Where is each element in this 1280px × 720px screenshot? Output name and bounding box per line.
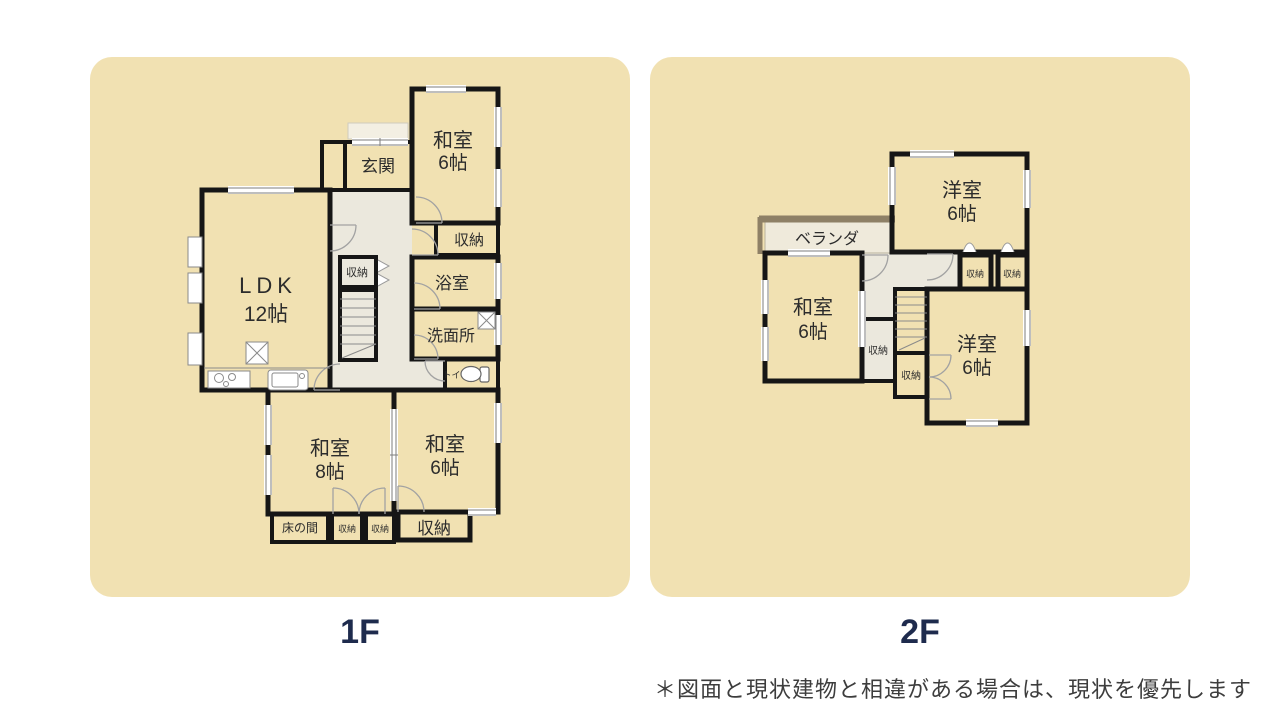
sink-icon <box>268 370 308 390</box>
window <box>468 508 496 516</box>
label-yoshitsu-s-size: 6帖 <box>962 357 992 379</box>
label-closet-n2: 収納 <box>1003 268 1021 279</box>
sliding-door <box>390 409 398 501</box>
window <box>1023 170 1031 208</box>
label-washitsu-ne-size: 6帖 <box>438 152 468 174</box>
label-ldk: LDK <box>239 273 297 298</box>
label-yoshitsu-n-size: 6帖 <box>947 203 977 225</box>
label-ldk-size: 12帖 <box>244 303 288 326</box>
hallway-wet <box>412 357 445 390</box>
label-washitsu-sw: 和室 <box>310 437 350 460</box>
entrance-porch <box>348 123 408 139</box>
window <box>910 150 954 158</box>
window <box>264 455 272 495</box>
window <box>228 186 294 194</box>
label-closet-w: 収納 <box>868 344 888 357</box>
floor-caption-1f: 1F <box>90 613 630 652</box>
toilet-icon <box>461 367 489 383</box>
label-washitsu-ne: 和室 <box>433 129 473 152</box>
window <box>788 249 830 257</box>
label-washitsu-2f: 和室 <box>793 296 833 319</box>
floorplan-panel-1f: 玄関 和室 6帖 収納 LDK 12帖 収納 浴室 洗面所 トイレ 和室 8帖 … <box>90 57 630 597</box>
window <box>264 405 272 445</box>
room-yoshitsu-n <box>892 154 1027 252</box>
label-closet-n1: 収納 <box>966 268 984 279</box>
label-closet-se: 収納 <box>417 519 451 538</box>
disclaimer-note: ＊図面と現状建物と相違がある場合は、現状を優先します <box>654 672 1252 704</box>
sliding-door <box>858 291 866 347</box>
label-washitsu-2f-size: 6帖 <box>798 321 828 343</box>
window <box>761 327 769 361</box>
label-washitsu-sw-size: 8帖 <box>315 461 345 483</box>
label-closet-s1: 収納 <box>338 523 356 534</box>
window <box>888 167 896 205</box>
window <box>494 403 502 443</box>
room-yoshitsu-s <box>927 289 1027 423</box>
label-veranda: ベランダ <box>795 230 859 248</box>
hallway-2f <box>895 253 960 289</box>
label-genkan: 玄関 <box>361 157 395 176</box>
label-washroom: 洗面所 <box>427 327 475 345</box>
label-tokonoma: 床の間 <box>282 521 318 535</box>
window <box>494 107 502 147</box>
washer-icon <box>478 312 495 329</box>
window <box>426 85 466 93</box>
stove-icon <box>208 371 250 388</box>
label-closet-ne: 収納 <box>454 232 484 249</box>
label-washitsu-se: 和室 <box>425 433 465 456</box>
window <box>966 419 998 427</box>
window <box>1023 310 1031 346</box>
label-closet-hall: 収納 <box>346 266 368 279</box>
floor-caption-2f: 2F <box>650 613 1190 652</box>
stairs-treads-icon <box>895 297 927 350</box>
label-closet-s-2f: 収納 <box>901 369 921 382</box>
window <box>494 263 502 299</box>
floorplan-1f: 玄関 和室 6帖 収納 LDK 12帖 収納 浴室 洗面所 トイレ 和室 8帖 … <box>90 57 630 597</box>
hatch-icon <box>246 342 268 364</box>
entry-sliding-door <box>352 138 408 146</box>
window <box>761 280 769 314</box>
label-closet-s2: 収納 <box>371 523 389 534</box>
window <box>494 169 502 207</box>
floorplan-2f: ベランダ 洋室 6帖 和室 6帖 収納 収納 収納 収納 洋室 6帖 <box>650 57 1190 597</box>
bay-window <box>188 237 202 365</box>
label-yoshitsu-s: 洋室 <box>957 333 997 356</box>
label-bath: 浴室 <box>435 274 469 293</box>
floorplan-panel-2f: ベランダ 洋室 6帖 和室 6帖 収納 収納 収納 収納 洋室 6帖 <box>650 57 1190 597</box>
label-washitsu-se-size: 6帖 <box>430 457 460 479</box>
shoe-cabinet <box>322 142 345 190</box>
label-yoshitsu-n: 洋室 <box>942 179 982 202</box>
